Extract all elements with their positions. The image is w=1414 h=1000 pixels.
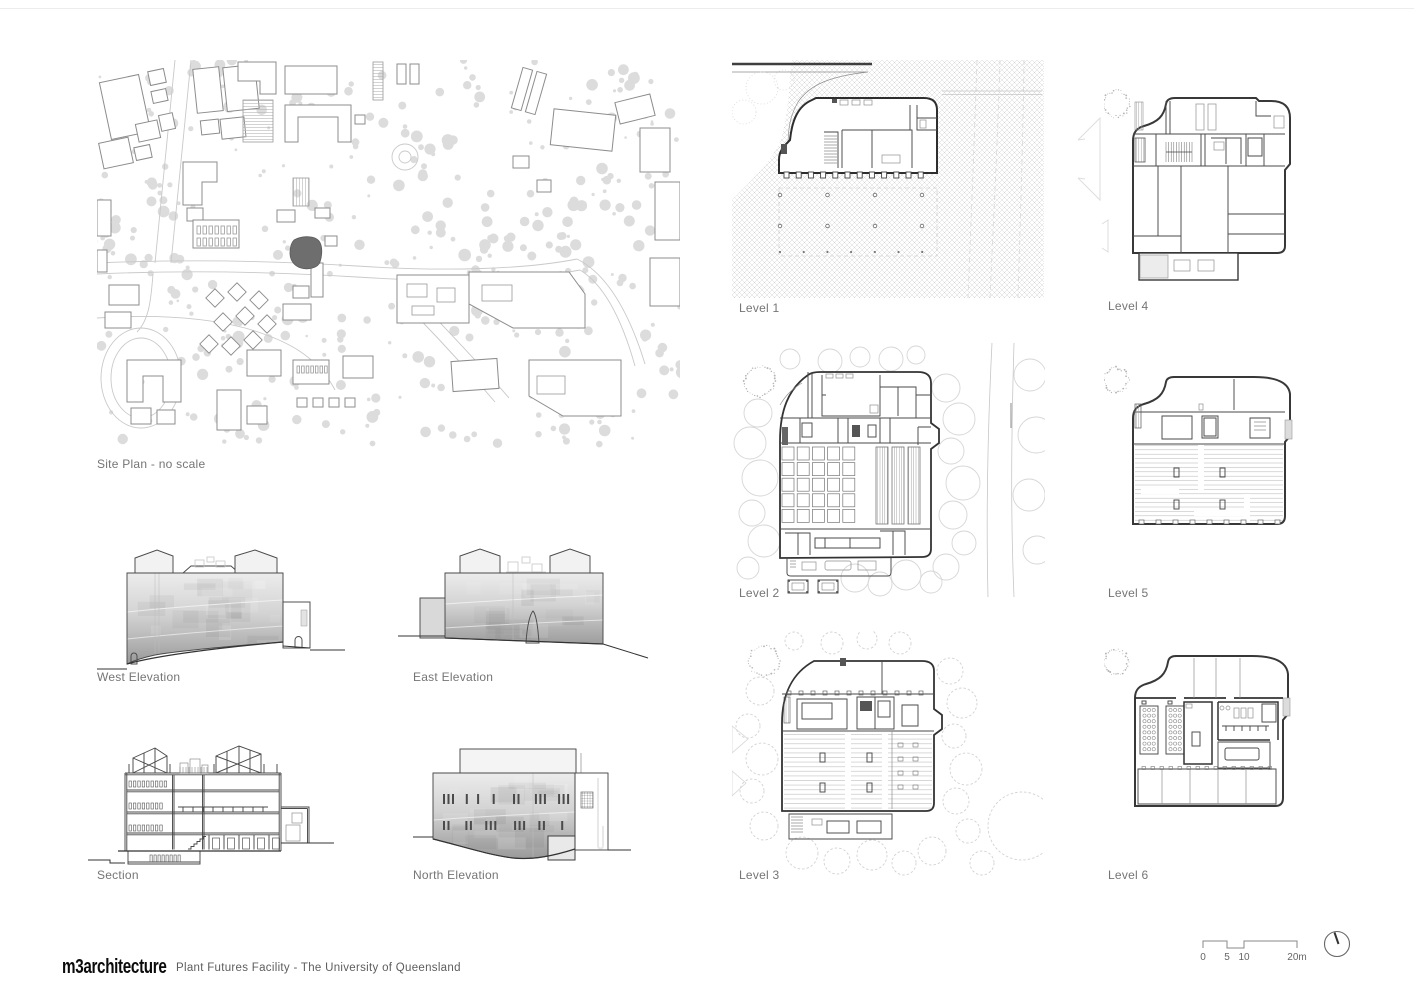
site-plan-drawing [97,60,680,448]
level-1-label: Level 1 [739,301,779,315]
site-plan-label: Site Plan - no scale [97,457,205,471]
scale-bar-drawing: 0 5 10 20m [1192,926,1362,970]
level-5-panel [1104,364,1318,546]
scale-tick-0: 0 [1200,952,1206,963]
scale-tick-10: 10 [1238,952,1250,963]
level-6-label: Level 6 [1108,868,1148,882]
level-4-drawing [1104,84,1318,306]
level-6-panel [1104,644,1318,824]
level-2-panel [730,343,1045,597]
level-4-label: Level 4 [1108,299,1148,313]
north-elevation-label: North Elevation [413,868,499,882]
level-2-label: Level 2 [739,586,779,600]
level-2-drawing [730,343,1045,597]
level-5-label: Level 5 [1108,586,1148,600]
section-drawing [88,733,338,871]
north-arrow-icon [1325,932,1350,957]
level-4-panel [1104,84,1318,306]
level-6-drawing [1104,644,1318,824]
level-3-panel [732,631,1044,879]
west-elevation-drawing [95,538,345,680]
firm-logo: m3architecture [62,956,167,979]
level-3-label: Level 3 [739,868,779,882]
west-elevation-panel [95,538,345,680]
project-title: Plant Futures Facility - The University … [176,962,461,974]
level-5-drawing [1104,364,1318,546]
sheet-edge-line [0,8,1414,9]
north-elevation-drawing [413,728,631,870]
level-3-drawing [732,631,1044,879]
section-label: Section [97,868,139,882]
north-elevation-panel [413,728,631,870]
east-elevation-drawing [398,538,650,680]
drawing-sheet: Site Plan - no scale [0,0,1414,1000]
east-elevation-panel [398,538,650,680]
site-plan-panel [97,60,680,448]
west-elevation-label: West Elevation [97,670,180,684]
section-panel [88,733,338,871]
east-elevation-label: East Elevation [413,670,493,684]
scale-north-panel: 0 5 10 20m [1192,926,1362,970]
scale-bar [1203,941,1297,948]
scale-tick-5: 5 [1224,952,1230,963]
level-1-drawing [732,60,1044,310]
scale-tick-20m: 20m [1287,952,1306,963]
level-1-panel [732,60,1044,310]
